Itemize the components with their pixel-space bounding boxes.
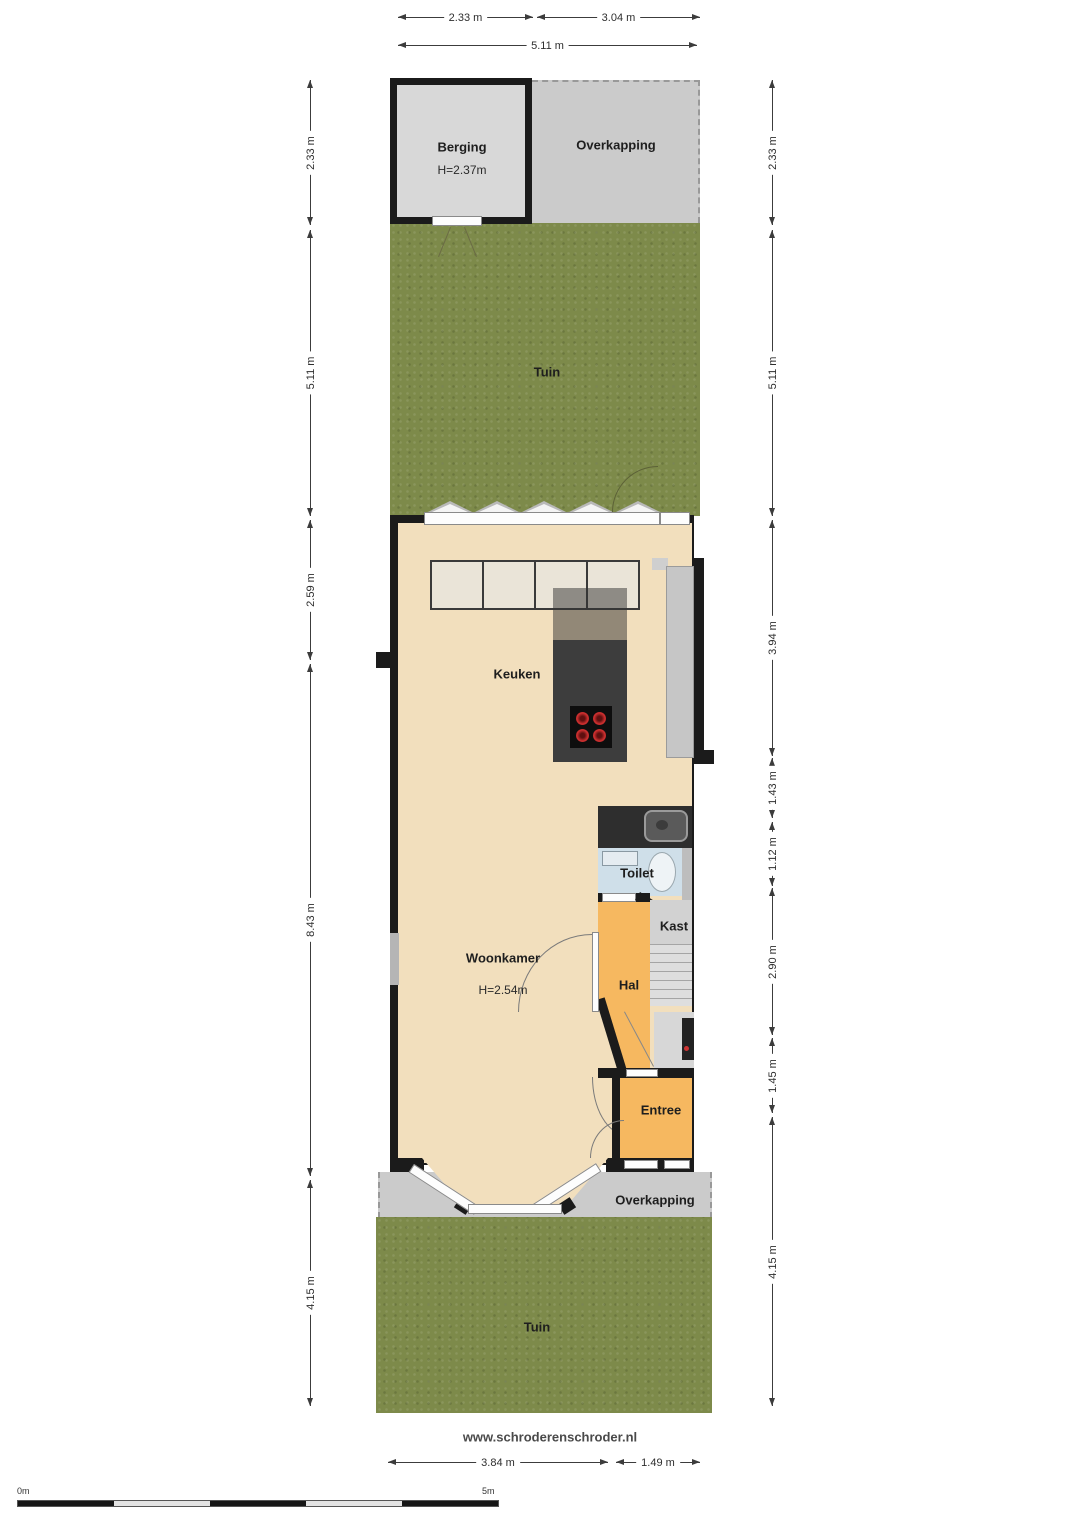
dim-left-4: 8.43 m: [310, 664, 311, 1176]
stairs: [650, 944, 692, 1006]
dim-bottom-right: 1.49 m: [616, 1462, 700, 1463]
toilet-door: [602, 893, 636, 902]
room-height-berging: H=2.37m: [437, 163, 486, 177]
dim-right-4: 1.43 m: [772, 758, 773, 818]
room-label-entree: Entree: [641, 1103, 681, 1118]
sink-icon: [644, 810, 688, 842]
front-door: [624, 1160, 658, 1169]
meter-panel: [682, 1018, 694, 1060]
dim-left-5: 4.15 m: [310, 1180, 311, 1406]
right-wall-counter: [666, 566, 694, 758]
website-text: www.schroderenschroder.nl: [463, 1430, 637, 1445]
dim-left-1: 2.33 m: [310, 80, 311, 225]
dim-right-8: 4.15 m: [772, 1117, 773, 1406]
shed-door: [432, 216, 482, 226]
right-wall-thick-section: [694, 558, 704, 760]
scalebar-end-label: 5m: [482, 1486, 495, 1496]
meter-indicator-icon: [684, 1046, 689, 1051]
dim-right-3: 3.94 m: [772, 520, 773, 756]
dim-top-total: 5.11 m: [398, 45, 697, 46]
cooktop: [570, 706, 612, 748]
sink-drain-icon: [656, 820, 668, 830]
dim-right-6: 2.90 m: [772, 888, 773, 1035]
room-label-toilet: Toilet: [620, 866, 654, 881]
burner-icon: [593, 712, 606, 725]
dim-right-1: 2.33 m: [772, 80, 773, 225]
kitchen-cabinet: [482, 560, 536, 610]
dim-right-5: 1.12 m: [772, 822, 773, 886]
dim-left-3: 2.59 m: [310, 520, 311, 660]
bay-window-front: [468, 1204, 562, 1214]
left-wall-notch: [376, 652, 398, 668]
room-label-woonkamer: Woonkamer: [466, 951, 540, 966]
scalebar: [17, 1500, 499, 1507]
kitchen-island-top: [553, 588, 627, 642]
dim-right-2: 5.11 m: [772, 230, 773, 516]
room-label-berging: Berging: [437, 140, 486, 155]
dim-left-2: 5.11 m: [310, 230, 311, 516]
room-label-tuin-top: Tuin: [534, 365, 560, 380]
living-hall-door: [592, 932, 599, 1012]
burner-icon: [593, 729, 606, 742]
radiator: [390, 933, 399, 985]
dim-right-7: 1.45 m: [772, 1038, 773, 1113]
dim-top-left: 2.33 m: [398, 17, 533, 18]
burner-icon: [576, 712, 589, 725]
entry-floor: [620, 1078, 692, 1162]
room-label-hal: Hal: [619, 978, 639, 993]
room-height-woonkamer: H=2.54m: [478, 983, 527, 997]
floorplan-canvas: Berging H=2.37m Overkapping Tuin Keuken …: [0, 0, 1080, 1528]
room-label-keuken: Keuken: [494, 667, 541, 682]
room-label-tuin-bottom: Tuin: [524, 1320, 550, 1335]
toilet-sink-icon: [602, 851, 638, 866]
garden-door-panel: [660, 512, 690, 525]
kitchen-cabinet: [430, 560, 484, 610]
dim-bottom-left: 3.84 m: [388, 1462, 608, 1463]
folding-garden-doors: [424, 512, 660, 525]
scalebar-start-label: 0m: [17, 1486, 30, 1496]
toilet-side-strip: [682, 848, 692, 906]
front-side-window: [664, 1160, 690, 1169]
room-label-overkapping-top: Overkapping: [576, 138, 655, 153]
room-label-overkapping-bottom: Overkapping: [615, 1193, 694, 1208]
garden-bottom-area: [376, 1217, 712, 1413]
dim-top-right: 3.04 m: [537, 17, 700, 18]
burner-icon: [576, 729, 589, 742]
hall-entry-door: [626, 1069, 658, 1077]
room-label-kast: Kast: [660, 919, 688, 934]
